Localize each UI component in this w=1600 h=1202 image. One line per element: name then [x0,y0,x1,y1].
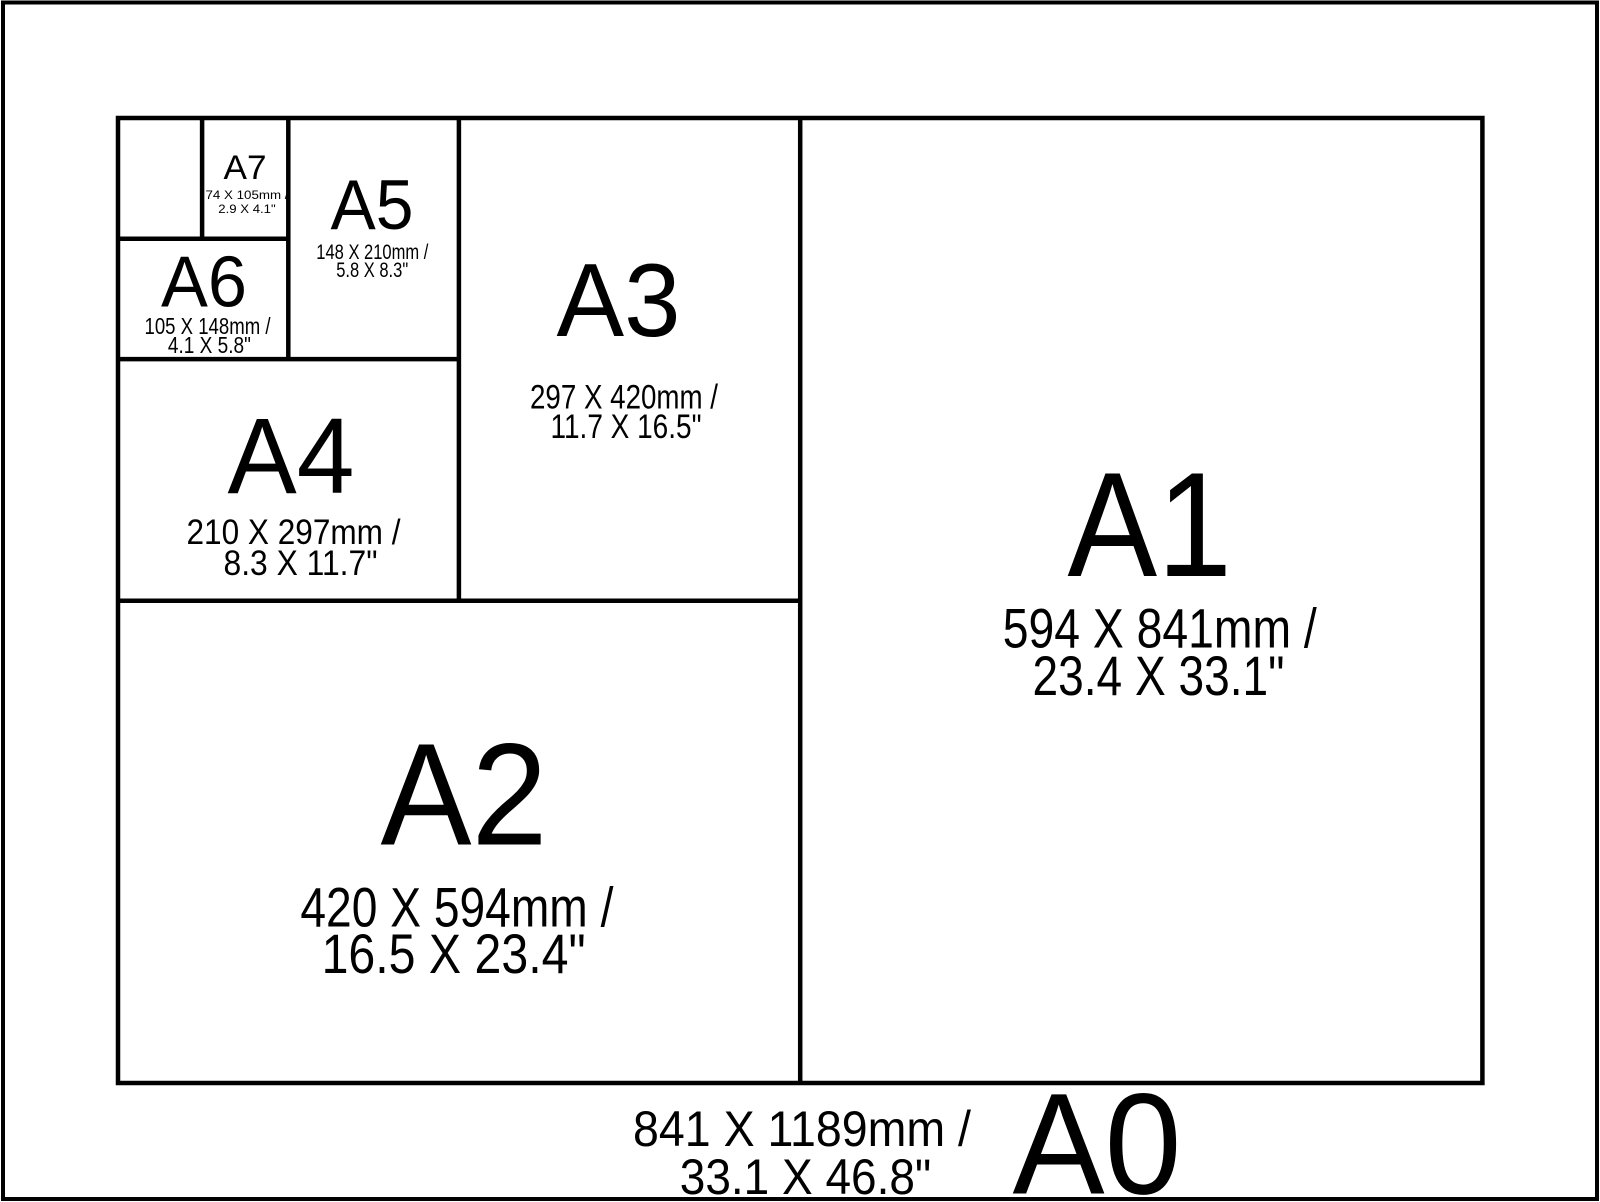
svg-text:A4: A4 [228,396,355,516]
svg-text:4.1 X 5.8": 4.1 X 5.8" [168,332,251,358]
svg-text:33.1 X 46.8": 33.1 X 46.8" [680,1149,932,1202]
svg-text:8.3 X 11.7": 8.3 X 11.7" [224,544,378,583]
svg-text:A0: A0 [1013,1064,1182,1202]
svg-text:A6: A6 [161,242,247,322]
svg-text:A5: A5 [331,166,414,245]
svg-text:A2: A2 [381,713,548,876]
svg-text:A1: A1 [1067,441,1232,608]
svg-text:2.9 X 4.1": 2.9 X 4.1" [218,202,275,216]
svg-text:16.5 X 23.4": 16.5 X 23.4" [322,922,586,985]
svg-text:23.4 X 33.1": 23.4 X 33.1" [1033,645,1285,707]
svg-text:11.7 X 16.5": 11.7 X 16.5" [551,408,702,446]
svg-text:5.8 X 8.3": 5.8 X 8.3" [336,259,408,282]
svg-text:74 X 105mm /: 74 X 105mm / [206,188,290,202]
svg-text:A7: A7 [224,149,267,187]
svg-text:A3: A3 [557,243,681,359]
